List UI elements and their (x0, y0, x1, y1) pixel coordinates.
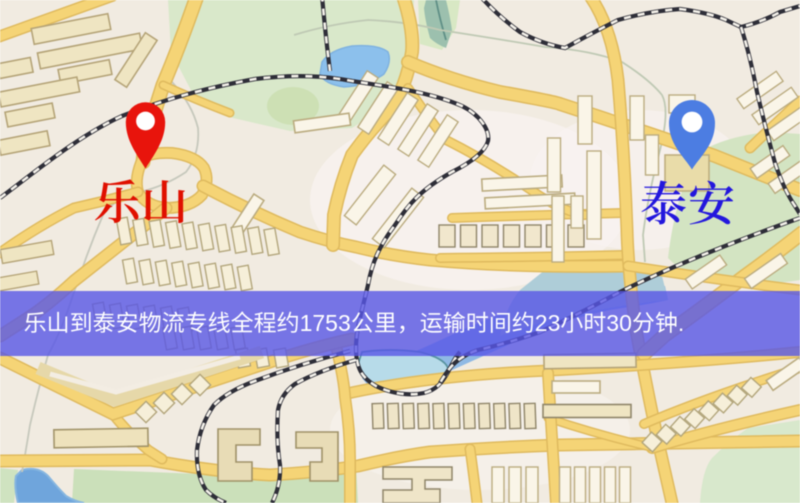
svg-text:23: 23 (535, 310, 561, 336)
svg-text:1753: 1753 (300, 310, 351, 336)
svg-text:.: . (678, 310, 684, 336)
svg-text:30: 30 (606, 310, 632, 336)
